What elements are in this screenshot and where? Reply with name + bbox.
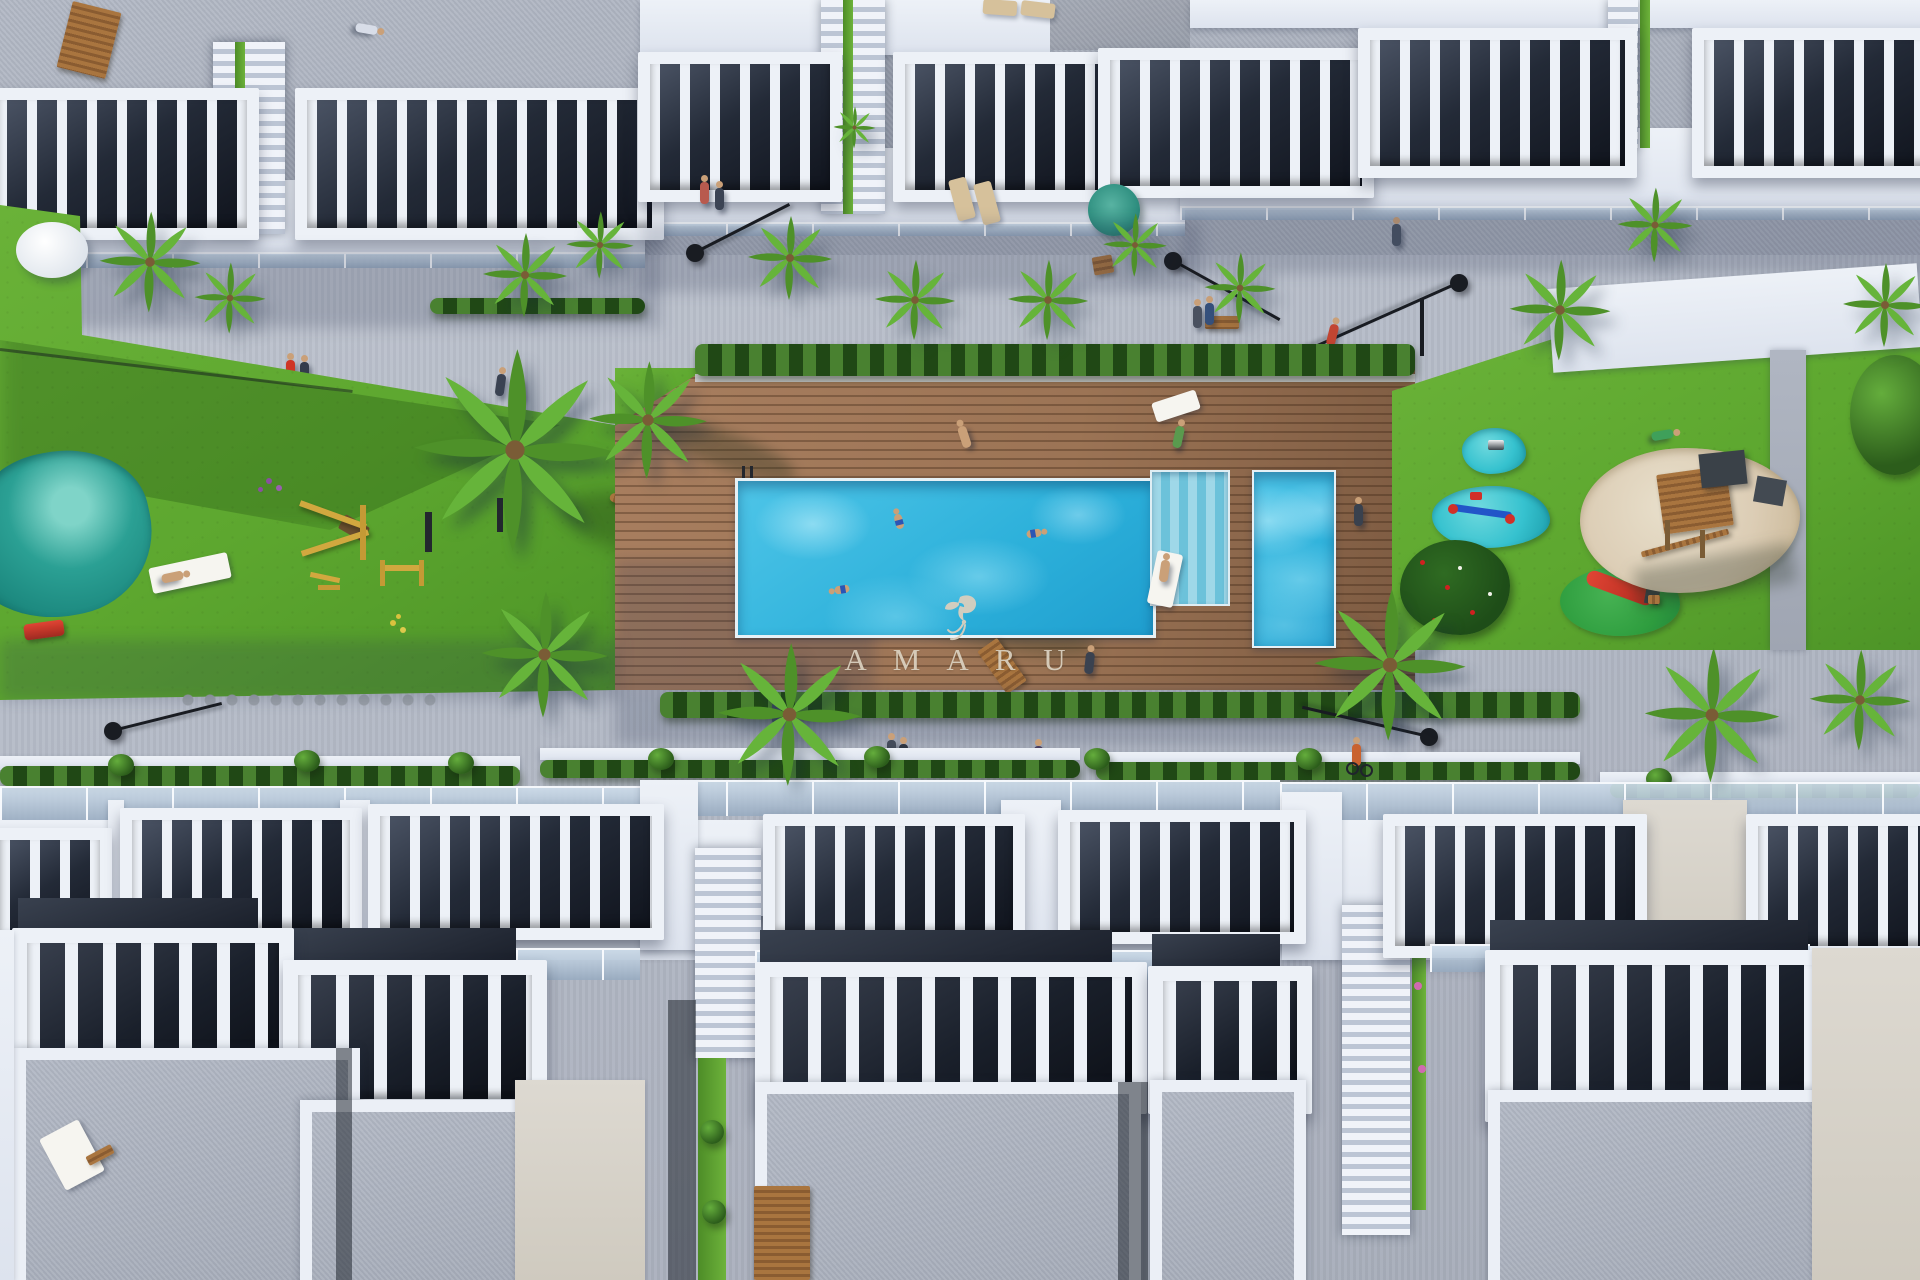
palm-tree <box>832 105 877 150</box>
flower <box>258 487 263 492</box>
scene-canvas: A M A R U <box>0 0 1920 1280</box>
wooden-bench <box>754 1186 810 1280</box>
palm-tree <box>477 587 612 722</box>
pool-ladder <box>750 466 753 478</box>
planter-hedge <box>1096 762 1580 780</box>
terrace-interior <box>1152 934 1280 968</box>
planter-bush <box>1084 748 1110 770</box>
play-seat <box>1648 595 1660 604</box>
terrace-interior <box>18 898 258 932</box>
palm-tree <box>745 213 835 303</box>
skylight-roof <box>1050 0 1190 50</box>
shade-sail <box>1753 476 1787 507</box>
sun-lounger <box>983 0 1018 16</box>
planter-bush <box>108 754 134 776</box>
flower <box>390 620 396 626</box>
planter-bush <box>702 1200 726 1224</box>
pink-flower <box>1414 982 1422 990</box>
street-lamp <box>1450 274 1468 292</box>
exercise-equipment <box>380 560 385 586</box>
white-flower <box>1458 566 1462 570</box>
stair-planting <box>698 1058 726 1280</box>
terrace-balustrade <box>763 814 1025 946</box>
green-strip <box>1640 0 1650 148</box>
shade-sail <box>1698 450 1747 489</box>
play-mat <box>1462 428 1526 474</box>
person <box>715 188 724 210</box>
lower-roof <box>755 1082 1141 1280</box>
flower <box>266 478 272 484</box>
roof-balustrade <box>1358 28 1637 178</box>
palm-tree <box>1101 211 1169 279</box>
palm-tree <box>96 208 204 316</box>
palm-tree <box>1202 250 1278 326</box>
toy-car <box>1488 440 1504 450</box>
planter-bush <box>448 752 474 774</box>
terrace-balustrade <box>368 804 664 940</box>
street-lamp <box>104 722 122 740</box>
lower-wall <box>1812 948 1920 1280</box>
lower-roof <box>1150 1080 1306 1280</box>
roof-balustrade <box>893 52 1113 202</box>
palm-tree <box>1615 185 1695 265</box>
roof-balustrade <box>638 52 842 202</box>
lower-wall <box>515 1080 645 1280</box>
seesaw-seat <box>1448 504 1458 514</box>
bicycle-wheel <box>1360 764 1373 777</box>
palm-tree <box>1506 256 1614 364</box>
lamp-post <box>1420 298 1424 356</box>
red-flower <box>1420 560 1425 565</box>
white-parasol <box>16 222 88 278</box>
white-flower <box>1488 592 1492 596</box>
building-gap <box>336 1048 352 1280</box>
planter-bush <box>700 1120 724 1144</box>
building-gap <box>668 1000 696 1280</box>
terrace-balustrade <box>1058 810 1306 944</box>
planter-bush <box>1296 748 1322 770</box>
person <box>1354 504 1363 526</box>
flower <box>400 627 406 633</box>
palm-tree <box>1005 257 1091 343</box>
street-lamp-arm <box>113 702 222 732</box>
play-mat <box>1432 486 1550 548</box>
planter-bush <box>864 746 890 768</box>
structure-post <box>1665 520 1670 550</box>
building-gap <box>1118 1082 1148 1280</box>
person <box>1193 306 1202 328</box>
bicycle-wheel <box>1346 762 1359 775</box>
flower <box>276 485 282 491</box>
street-lamp <box>686 244 704 262</box>
exercise-equipment <box>419 560 424 586</box>
palm-tree <box>1840 260 1920 350</box>
planter-bush <box>294 750 320 772</box>
exercise-equipment <box>380 565 424 571</box>
palm-tree <box>480 230 570 320</box>
palm-tree <box>1806 646 1914 754</box>
brand-name: A M A R U <box>828 642 1092 682</box>
palm-tree <box>1309 584 1471 746</box>
exercise-equipment <box>318 585 340 590</box>
palm-tree <box>192 260 268 336</box>
roof-balustrade <box>1098 48 1374 198</box>
lower-roof <box>1488 1090 1836 1280</box>
wall-sliver <box>0 930 14 1280</box>
flower <box>396 614 401 619</box>
planter-bush <box>648 748 674 770</box>
palm-tree <box>585 357 711 483</box>
toy <box>1470 492 1482 500</box>
palm-tree <box>872 257 958 343</box>
palm-tree <box>564 209 636 281</box>
pink-flower <box>1418 1065 1426 1073</box>
seesaw-seat <box>1505 514 1515 524</box>
pool-ladder <box>742 466 745 478</box>
terrace-interior <box>288 928 516 964</box>
brand-logo-icon <box>940 594 980 646</box>
hedge-row <box>695 344 1415 376</box>
planter-hedge <box>0 766 520 786</box>
terrace-interior <box>760 930 1112 966</box>
structure-post <box>1700 530 1705 558</box>
roof-balustrade <box>1692 28 1920 178</box>
person <box>700 182 709 204</box>
palm-tree <box>1640 643 1784 787</box>
staircase <box>695 848 761 1058</box>
exercise-equipment <box>360 505 366 560</box>
roof-slab <box>1190 0 1920 28</box>
